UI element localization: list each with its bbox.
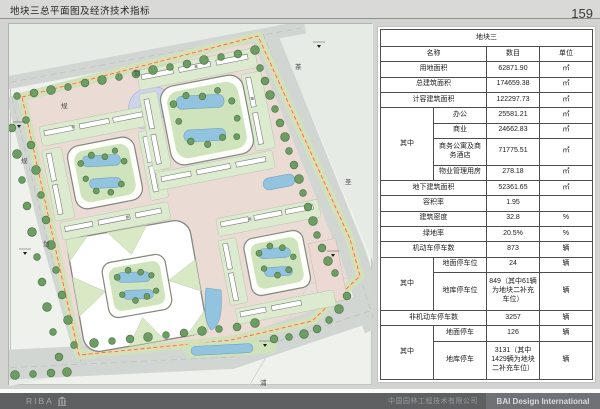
- table-row: 地下建筑面积52361.65㎡: [381, 181, 593, 196]
- name-cell: 物业管理用房: [434, 165, 487, 180]
- unit-cell: ㎡: [540, 138, 593, 165]
- column-header-value: 数目: [487, 47, 540, 62]
- column-header-unit: 单位: [540, 47, 593, 62]
- value-cell: 24662.83: [487, 123, 540, 138]
- value-cell: 32.8: [487, 211, 540, 226]
- unit-cell: %: [540, 211, 593, 226]
- indicators-table: 地块三 名称 数目 单位 用地面积62871.90㎡总建筑面积174659.38…: [380, 29, 593, 380]
- name-cell: 地面停车: [434, 326, 487, 341]
- unit-cell: ㎡: [540, 123, 593, 138]
- name-cell: 非机动车停车数: [381, 311, 487, 326]
- road-label: 圣: [345, 178, 352, 186]
- header-bar: 地块三总平面图及经济技术指标: [0, 0, 600, 19]
- unit-cell: ㎡: [540, 108, 593, 123]
- value-cell: 3131（其中1429辆为地块二补充车位）: [487, 341, 540, 379]
- road-label: 划: [134, 68, 141, 77]
- value-cell: 71775.51: [487, 138, 540, 165]
- riba-crest-icon: [57, 396, 67, 406]
- value-cell: 3257: [487, 311, 540, 326]
- unit-cell: 辆: [540, 257, 593, 272]
- table-row: 容积率1.95: [381, 196, 593, 211]
- value-cell: 20.5%: [487, 227, 540, 242]
- value-cell: 122297.73: [487, 92, 540, 107]
- table-row: 非机动车停车数3257辆: [381, 311, 593, 326]
- value-cell: 278.18: [487, 165, 540, 180]
- table-row: 绿地率20.5%%: [381, 227, 593, 242]
- name-cell: 地库停车位: [434, 273, 487, 311]
- table-row: 建筑密度32.8%: [381, 211, 593, 226]
- table-header-row: 名称 数目 单位: [381, 47, 593, 62]
- page: { "header": { "title": "地块三总平面图及经济技术指标",…: [0, 0, 600, 409]
- column-header-name: 名称: [381, 47, 487, 62]
- brand-block: BAI Design International: [486, 393, 600, 409]
- value-cell: 873: [487, 242, 540, 257]
- unit-cell: 辆: [540, 273, 593, 311]
- table-row: 其中办公25581.21㎡: [381, 108, 593, 123]
- unit-cell: 辆: [540, 242, 593, 257]
- indicators-table-body: 地块三 名称 数目 单位 用地面积62871.90㎡总建筑面积174659.38…: [381, 30, 593, 380]
- road-label: 规: [21, 156, 28, 165]
- name-cell: 绿地率: [381, 227, 487, 242]
- road-label: 浦: [260, 378, 267, 386]
- footer-right: 中国园林工程技术有限公司 BAI Design International: [388, 393, 600, 409]
- site-plan-drawing: 规 划 规 划 茶 圣 浦: [9, 24, 373, 386]
- value-cell: 24: [487, 257, 540, 272]
- table-title-row: 地块三: [381, 30, 593, 47]
- unit-cell: 辆: [540, 326, 593, 341]
- subgroup-cell: 其中: [381, 108, 434, 181]
- unit-cell: ㎡: [540, 165, 593, 180]
- value-cell: 62871.90: [487, 62, 540, 77]
- table-row: 机动车停车数873辆: [381, 242, 593, 257]
- name-cell: 建筑密度: [381, 211, 487, 226]
- unit-cell: 辆: [540, 311, 593, 326]
- page-title: 地块三总平面图及经济技术指标: [10, 3, 150, 17]
- name-cell: 商业: [434, 123, 487, 138]
- name-cell: 总建筑面积: [381, 77, 487, 92]
- name-cell: 地下建筑面积: [381, 181, 487, 196]
- name-cell: 计容建筑面积: [381, 92, 487, 107]
- brand-name: BAI Design International: [497, 397, 590, 406]
- indicators-table-card: 地块三 名称 数目 单位 用地面积62871.90㎡总建筑面积174659.38…: [377, 26, 596, 383]
- name-cell: 地面停车位: [434, 257, 487, 272]
- table-row: 总建筑面积174659.38㎡: [381, 77, 593, 92]
- footer-bar: RIBA 中国园林工程技术有限公司 BAI Design Internation…: [0, 393, 600, 409]
- subgroup-cell: 其中: [381, 257, 434, 310]
- road-label: 茶: [295, 62, 302, 71]
- name-cell: 办公: [434, 108, 487, 123]
- unit-cell: ㎡: [540, 77, 593, 92]
- name-cell: 机动车停车数: [381, 242, 487, 257]
- table-title: 地块三: [381, 30, 593, 47]
- name-cell: 商务公寓及商务酒店: [434, 138, 487, 165]
- unit-cell: 辆: [540, 341, 593, 379]
- road-label: 规: [61, 101, 68, 110]
- page-number: 159: [571, 6, 593, 21]
- unit-cell: ㎡: [540, 62, 593, 77]
- value-cell: 126: [487, 326, 540, 341]
- name-cell: 容积率: [381, 196, 487, 211]
- table-row: 用地面积62871.90㎡: [381, 62, 593, 77]
- name-cell: 用地面积: [381, 62, 487, 77]
- value-cell: 174659.38: [487, 77, 540, 92]
- riba-logo: RIBA: [26, 396, 67, 406]
- unit-cell: %: [540, 227, 593, 242]
- table-row: 其中地面停车位24辆: [381, 257, 593, 272]
- value-cell: 1.95: [487, 196, 540, 211]
- table-row: 其中地面停车126辆: [381, 326, 593, 341]
- site-plan-panel: 规 划 规 划 茶 圣 浦: [8, 23, 372, 385]
- value-cell: 849（其中61辆为地块二补充车位）: [487, 273, 540, 311]
- unit-cell: [540, 196, 593, 211]
- subgroup-cell: 其中: [381, 326, 434, 380]
- value-cell: 52361.65: [487, 181, 540, 196]
- company-name: 中国园林工程技术有限公司: [388, 396, 478, 406]
- riba-logo-text: RIBA: [26, 396, 54, 406]
- table-row: 计容建筑面积122297.73㎡: [381, 92, 593, 107]
- value-cell: 25581.21: [487, 108, 540, 123]
- unit-cell: ㎡: [540, 181, 593, 196]
- name-cell: 地库停车: [434, 341, 487, 379]
- road-label: 划: [43, 239, 50, 248]
- unit-cell: ㎡: [540, 92, 593, 107]
